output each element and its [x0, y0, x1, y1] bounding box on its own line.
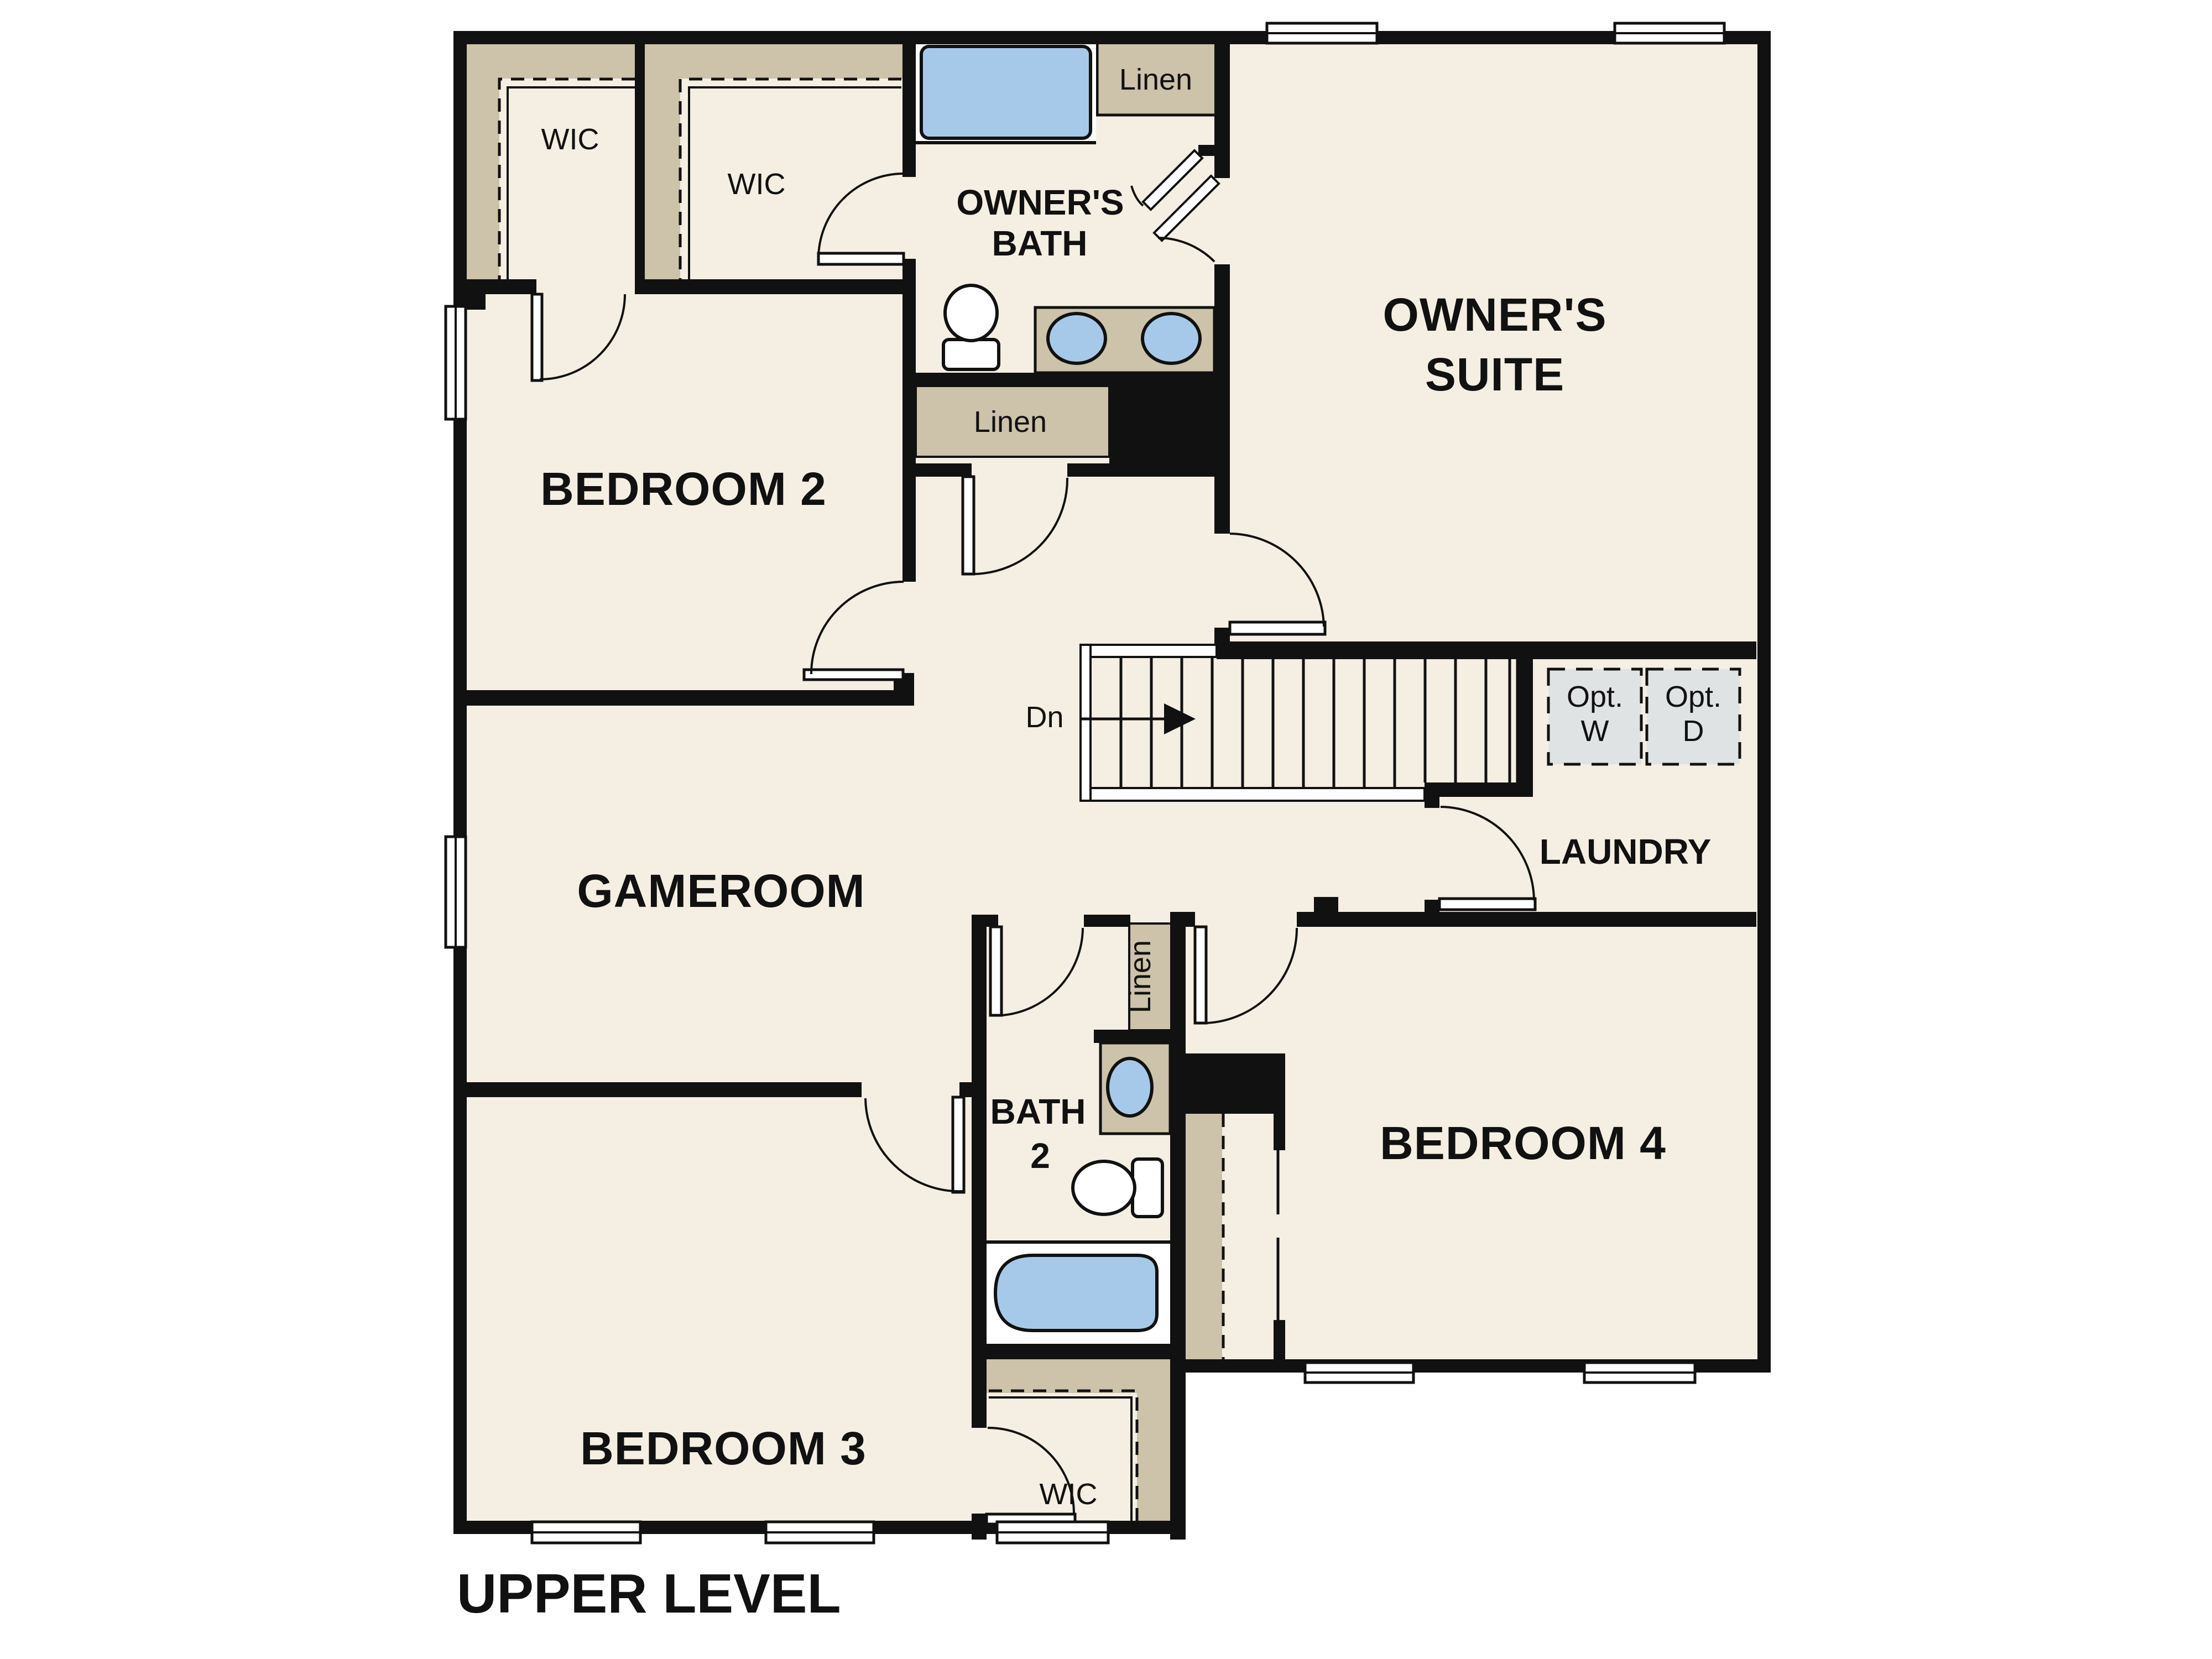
svg-text:BEDROOM 2: BEDROOM 2 [540, 463, 827, 515]
svg-text:Linen: Linen [1124, 940, 1157, 1013]
svg-text:Linen: Linen [974, 405, 1047, 439]
svg-text:D: D [1683, 714, 1704, 748]
svg-text:Opt.: Opt. [1567, 680, 1623, 713]
svg-text:GAMEROOM: GAMEROOM [577, 865, 865, 917]
svg-text:Dn: Dn [1025, 701, 1063, 734]
svg-text:WIC: WIC [1040, 1478, 1098, 1511]
svg-text:W: W [1581, 714, 1609, 748]
svg-text:Linen: Linen [1119, 63, 1192, 96]
svg-text:WIC: WIC [728, 168, 786, 201]
svg-text:BATH: BATH [990, 1092, 1086, 1131]
svg-text:Opt.: Opt. [1665, 680, 1721, 713]
svg-text:BEDROOM 3: BEDROOM 3 [580, 1422, 867, 1474]
svg-text:LAUNDRY: LAUNDRY [1540, 832, 1712, 872]
svg-text:OWNER'S: OWNER'S [956, 182, 1124, 222]
svg-text:2: 2 [1030, 1136, 1050, 1176]
svg-text:BEDROOM 4: BEDROOM 4 [1380, 1117, 1666, 1169]
svg-text:SUITE: SUITE [1425, 348, 1564, 400]
svg-text:OWNER'S: OWNER'S [1383, 289, 1607, 341]
svg-text:BATH: BATH [992, 223, 1088, 263]
svg-text:WIC: WIC [541, 123, 599, 156]
svg-text:UPPER LEVEL: UPPER LEVEL [457, 1563, 841, 1625]
